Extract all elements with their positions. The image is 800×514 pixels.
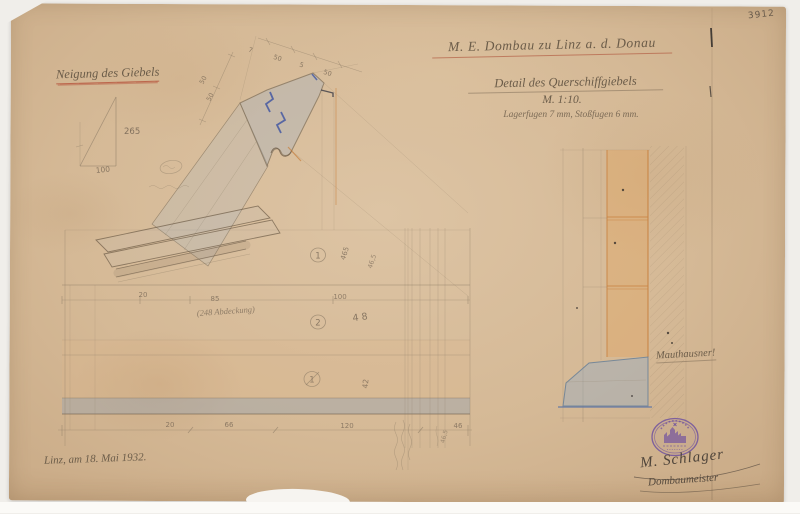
scale-note: M. 1:10.: [527, 94, 597, 106]
slope-heading: Neigung des Giebels: [56, 65, 160, 85]
fold-crease: [711, 8, 713, 500]
scan-background-strip: [0, 502, 800, 513]
joints-note: Lagerfugen 7 mm, Stoßfugen 6 mm.: [486, 110, 656, 120]
drawing-subtitle: Detail des Querschiffgiebels: [468, 73, 663, 93]
